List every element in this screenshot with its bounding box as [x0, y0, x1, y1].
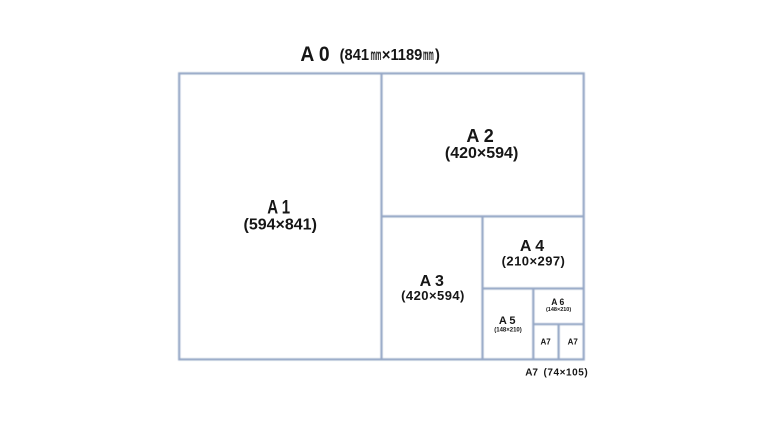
svg-text:): )	[435, 47, 440, 64]
svg-text:A7: A7	[568, 337, 579, 346]
svg-text:(74×105): (74×105)	[544, 367, 589, 378]
svg-text:A7: A7	[525, 367, 538, 378]
svg-text:(148×210): (148×210)	[546, 307, 571, 313]
svg-text:A7: A7	[540, 337, 551, 346]
svg-text:(148×210): (148×210)	[494, 328, 522, 334]
svg-text:A 2: A 2	[466, 126, 493, 146]
svg-text:×1189: ×1189	[382, 47, 422, 64]
svg-text:mm: mm	[423, 45, 434, 64]
svg-text:A 1: A 1	[267, 197, 290, 218]
svg-text:(420×594): (420×594)	[445, 145, 518, 162]
svg-text:A 6: A 6	[551, 297, 564, 307]
svg-text:A 5: A 5	[499, 315, 516, 327]
svg-text:(594×841): (594×841)	[244, 217, 317, 234]
svg-text:A 0: A 0	[300, 43, 329, 66]
svg-text:A 4: A 4	[520, 238, 544, 255]
svg-text:(420×594): (420×594)	[401, 288, 465, 303]
svg-text:mm: mm	[370, 45, 381, 64]
svg-text:(841: (841	[340, 47, 369, 64]
svg-text:(210×297): (210×297)	[502, 254, 566, 269]
